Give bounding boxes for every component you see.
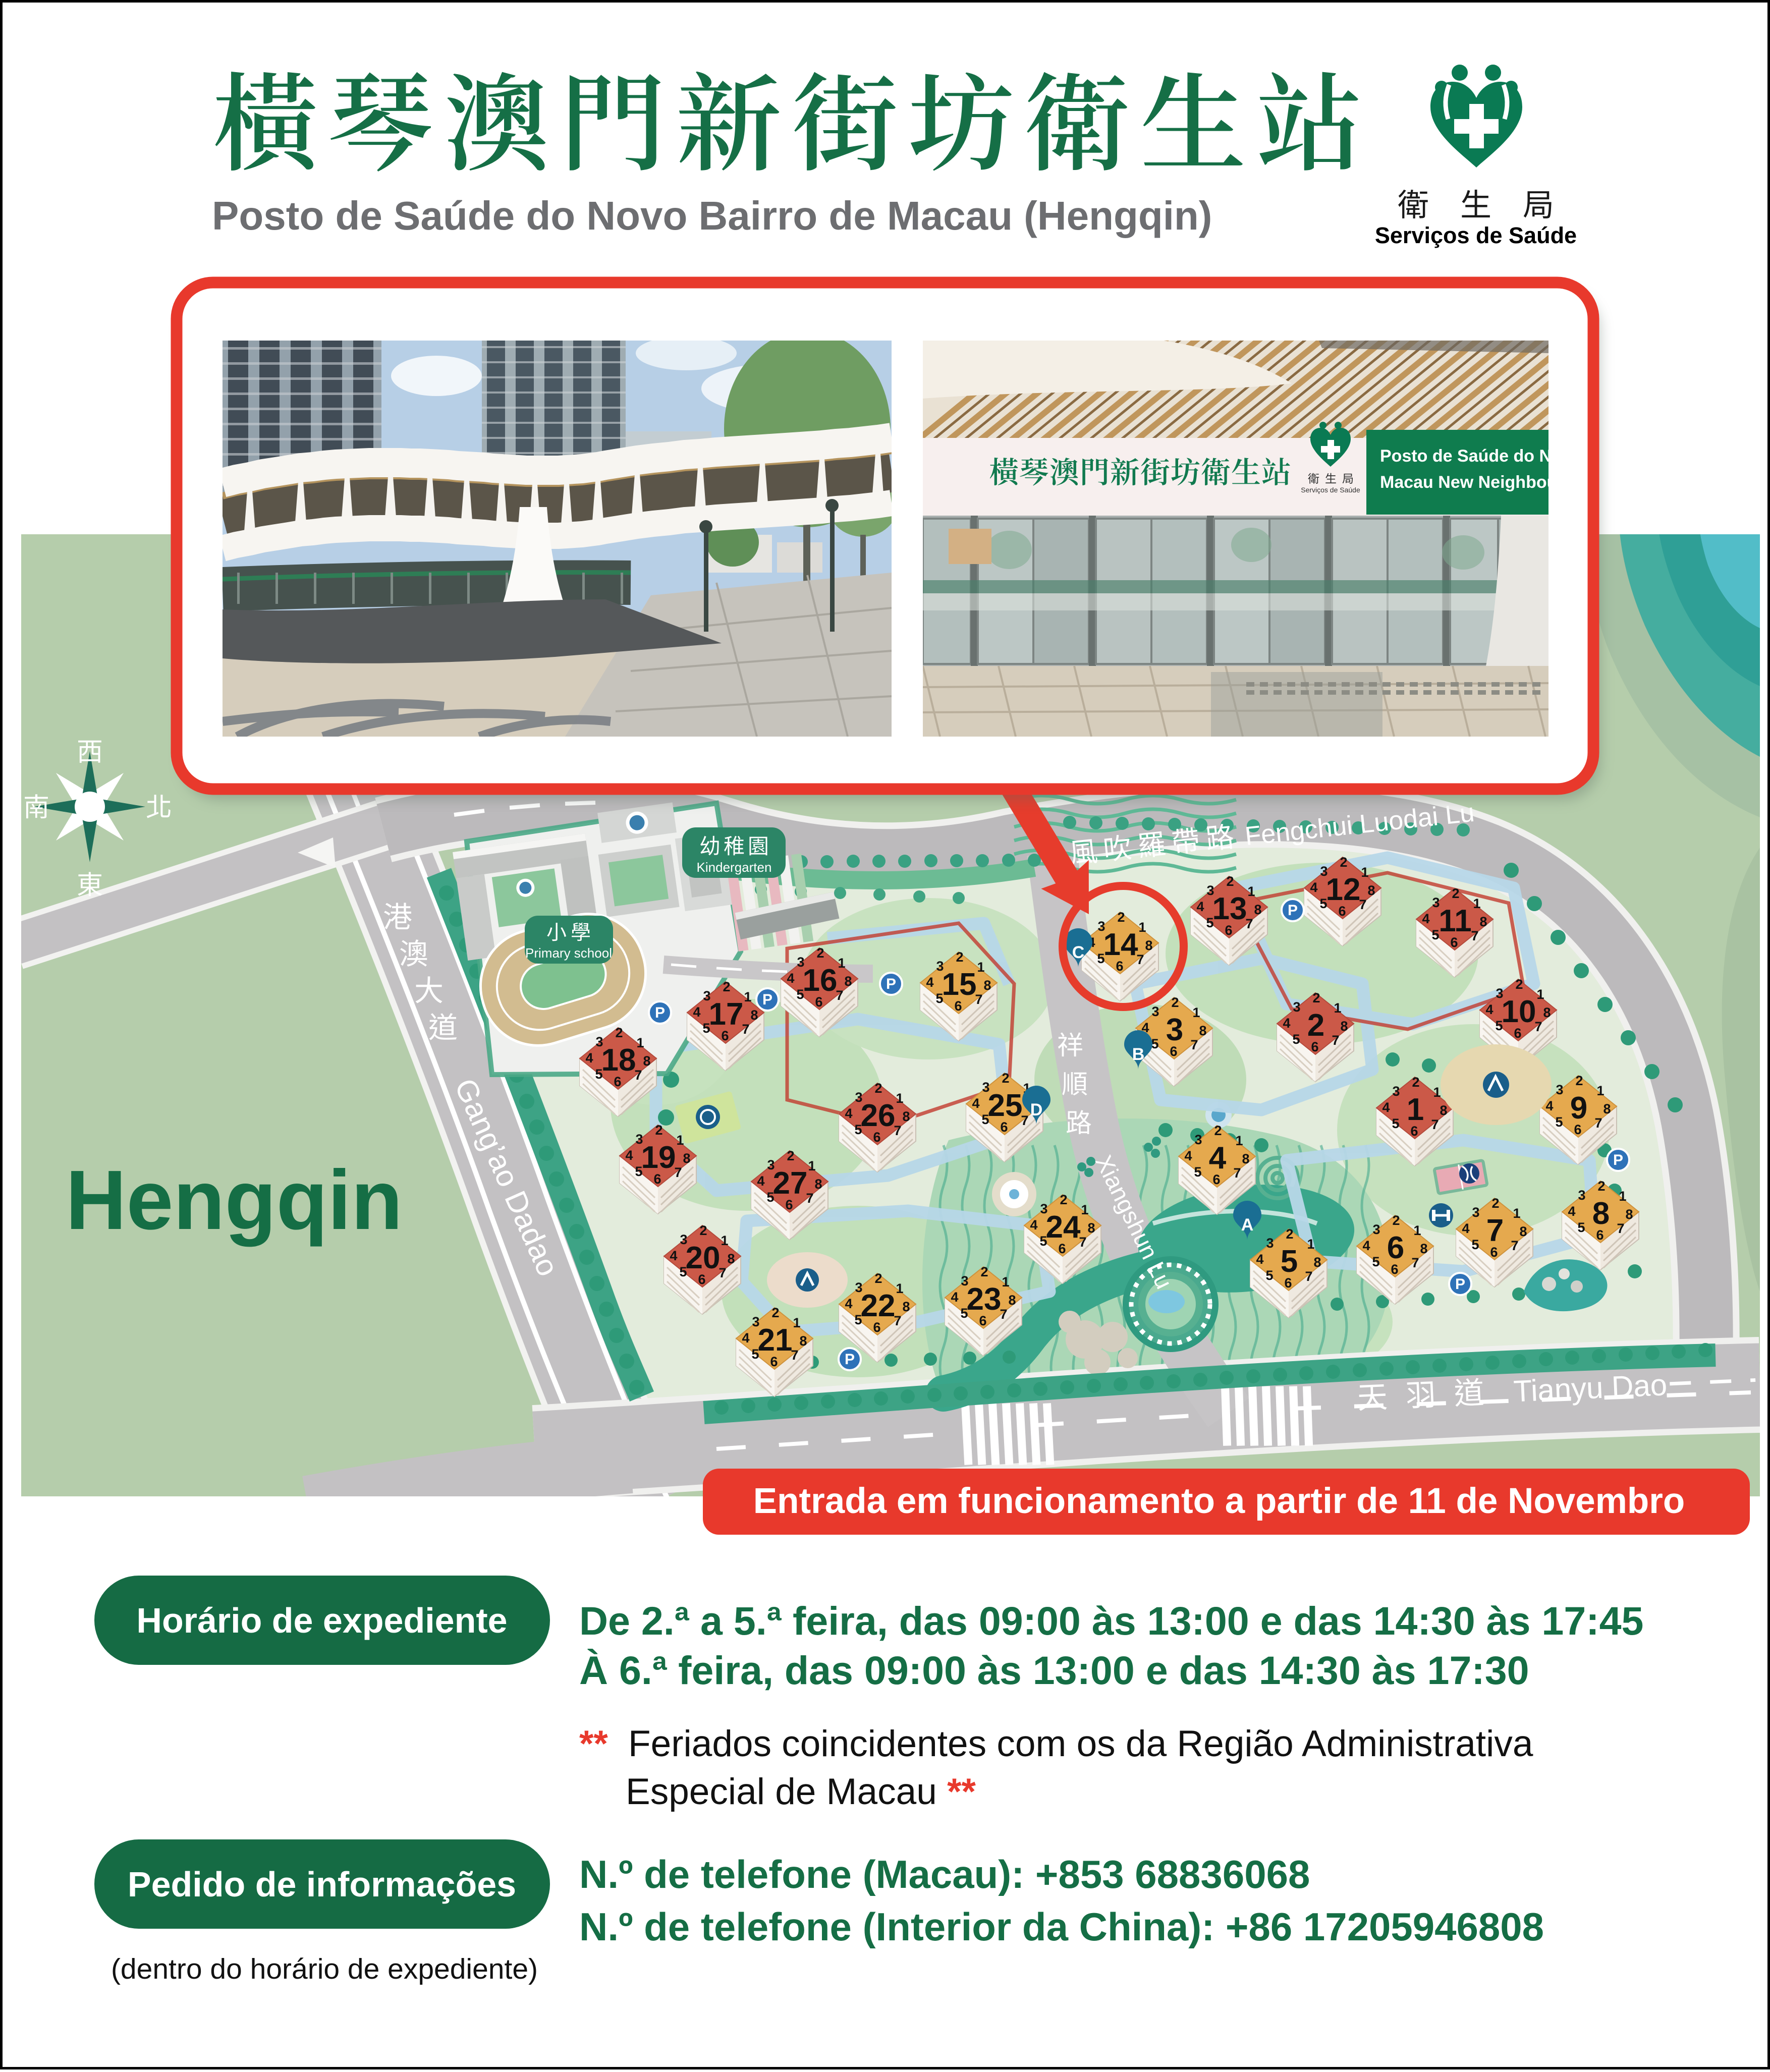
svg-text:5: 5 (1194, 1164, 1201, 1180)
svg-text:5: 5 (1392, 1116, 1399, 1131)
svg-text:4: 4 (1283, 1016, 1290, 1031)
svg-text:De 2.ª a 5.ª feira, das 09:00: De 2.ª a 5.ª feira, das 09:00 às 13:00 e… (579, 1598, 1643, 1643)
svg-text:2: 2 (1002, 1071, 1009, 1086)
svg-text:8: 8 (1479, 914, 1487, 929)
svg-text:1: 1 (1433, 1085, 1441, 1100)
svg-text:11: 11 (1439, 904, 1472, 938)
svg-text:13: 13 (1212, 891, 1247, 926)
svg-text:8: 8 (1420, 1241, 1427, 1256)
svg-text:2: 2 (771, 1305, 779, 1320)
svg-text:Posto de Saúde do Novo Bairro: Posto de Saúde do Novo Bairro de Macau (… (212, 193, 1212, 238)
svg-text:4: 4 (625, 1148, 633, 1163)
svg-text:N.º de telefone (Interior da C: N.º de telefone (Interior da China): +86… (579, 1905, 1544, 1949)
svg-text:2: 2 (1286, 1226, 1293, 1242)
svg-text:Especial de Macau **: Especial de Macau ** (626, 1771, 976, 1812)
svg-text:1: 1 (896, 1281, 903, 1296)
svg-text:4: 4 (1196, 899, 1204, 914)
svg-text:2: 2 (1226, 874, 1234, 889)
svg-text:2: 2 (1307, 1008, 1324, 1043)
svg-text:5: 5 (1281, 1244, 1298, 1279)
svg-text:2: 2 (723, 979, 730, 994)
svg-text:8: 8 (1592, 1196, 1610, 1231)
svg-text:4: 4 (693, 1004, 700, 1020)
svg-text:Primary school: Primary school (525, 945, 612, 961)
svg-text:1: 1 (1081, 1202, 1088, 1217)
svg-text:1: 1 (1413, 1223, 1421, 1238)
svg-text:1: 1 (896, 1091, 903, 1106)
svg-text:16: 16 (803, 963, 838, 998)
svg-text:2: 2 (1060, 1192, 1067, 1207)
svg-text:4: 4 (1462, 1221, 1469, 1236)
svg-text:8: 8 (1199, 1023, 1206, 1038)
svg-text:2: 2 (1597, 1179, 1605, 1194)
svg-text:8: 8 (1440, 1103, 1447, 1118)
svg-text:4: 4 (926, 975, 933, 990)
svg-text:24: 24 (1046, 1210, 1081, 1245)
svg-text:7: 7 (1190, 1037, 1198, 1052)
svg-text:8: 8 (1254, 902, 1261, 917)
svg-text:8: 8 (1313, 1255, 1321, 1270)
svg-text:4: 4 (1184, 1148, 1192, 1163)
svg-text:1: 1 (977, 960, 984, 975)
svg-text:1: 1 (808, 1158, 815, 1173)
svg-text:Tianyu Dao: Tianyu Dao (1513, 1368, 1668, 1408)
svg-text:17: 17 (709, 997, 744, 1032)
svg-text:8: 8 (1625, 1207, 1633, 1222)
svg-text:8: 8 (1543, 1005, 1551, 1020)
svg-text:4: 4 (585, 1050, 593, 1066)
svg-text:7: 7 (1332, 1033, 1339, 1048)
svg-text:8: 8 (1145, 938, 1152, 953)
svg-text:2: 2 (655, 1123, 662, 1138)
svg-text:4: 4 (972, 1096, 979, 1111)
svg-text:7: 7 (1411, 1255, 1419, 1270)
svg-text:8: 8 (902, 1109, 910, 1124)
svg-text:P: P (1613, 1152, 1623, 1168)
svg-text:(dentro do horário de expedien: (dentro do horário de expediente) (111, 1953, 538, 1985)
svg-text:8: 8 (1340, 1019, 1348, 1034)
svg-text:8: 8 (750, 1007, 758, 1023)
svg-text:2: 2 (1515, 977, 1523, 992)
svg-text:3: 3 (1372, 1222, 1380, 1237)
svg-text:Horário de expediente: Horário de expediente (136, 1601, 507, 1640)
svg-text:2: 2 (1312, 990, 1320, 1005)
svg-text:1: 1 (1192, 1005, 1200, 1020)
svg-text:3: 3 (1556, 1082, 1563, 1097)
svg-text:Serviços de Saúde: Serviços de Saúde (1375, 222, 1577, 248)
svg-text:1: 1 (1307, 1237, 1314, 1252)
svg-text:10: 10 (1502, 994, 1536, 1029)
svg-text:4: 4 (1030, 1217, 1037, 1233)
svg-text:5: 5 (1292, 1032, 1300, 1047)
svg-text:7: 7 (1305, 1269, 1312, 1284)
svg-text:A: A (1241, 1215, 1254, 1235)
svg-text:1: 1 (1361, 865, 1368, 880)
svg-text:P: P (845, 1351, 855, 1368)
svg-text:4: 4 (845, 1106, 852, 1121)
svg-text:8: 8 (1008, 1293, 1016, 1308)
svg-text:1: 1 (1334, 1000, 1341, 1016)
svg-text:2: 2 (787, 1148, 794, 1163)
svg-text:8: 8 (844, 974, 852, 989)
svg-text:2: 2 (1117, 910, 1125, 925)
svg-text:Serviços de Saúde: Serviços de Saúde (1301, 486, 1360, 494)
svg-text:5: 5 (1577, 1220, 1585, 1235)
svg-text:2: 2 (1392, 1213, 1400, 1228)
svg-text:1: 1 (1619, 1189, 1626, 1204)
svg-text:Entrada em funcionamento a par: Entrada em funcionamento a partir de 11 … (753, 1481, 1685, 1521)
svg-text:8: 8 (643, 1053, 650, 1069)
svg-text:1: 1 (721, 1233, 728, 1248)
svg-text:1: 1 (793, 1315, 800, 1330)
svg-text:4: 4 (742, 1330, 749, 1346)
svg-text:2: 2 (699, 1223, 707, 1238)
svg-text:7: 7 (1617, 1221, 1624, 1236)
svg-text:2: 2 (1491, 1196, 1499, 1211)
svg-text:P: P (1288, 902, 1298, 919)
svg-text:26: 26 (861, 1098, 896, 1133)
svg-text:5: 5 (1471, 1237, 1479, 1252)
svg-text:**: ** (579, 1723, 608, 1764)
svg-text:2: 2 (980, 1264, 988, 1279)
svg-text:P: P (762, 991, 772, 1008)
svg-text:Feriados coincidentes com os d: Feriados coincidentes com os da Região A… (628, 1723, 1533, 1764)
svg-text:7: 7 (1511, 1238, 1518, 1253)
svg-text:Pedido de informações: Pedido de informações (128, 1865, 516, 1904)
svg-text:9: 9 (1570, 1091, 1587, 1126)
svg-text:4: 4 (1310, 880, 1317, 895)
svg-text:4: 4 (670, 1248, 677, 1263)
svg-text:7: 7 (1233, 1165, 1241, 1181)
svg-text:7: 7 (1486, 1213, 1504, 1248)
svg-text:4: 4 (787, 971, 794, 986)
svg-text:3: 3 (1293, 999, 1300, 1015)
svg-text:C: C (1072, 943, 1085, 962)
svg-text:1: 1 (1513, 1206, 1520, 1221)
svg-text:1: 1 (1247, 884, 1255, 899)
svg-text:3: 3 (1194, 1132, 1202, 1147)
svg-text:4: 4 (1485, 1002, 1493, 1017)
svg-text:1: 1 (838, 956, 845, 971)
svg-text:8: 8 (983, 978, 991, 993)
svg-text:Kindergarten: Kindergarten (697, 860, 772, 875)
svg-text:1: 1 (1407, 1092, 1424, 1127)
svg-text:2: 2 (1340, 855, 1347, 870)
svg-text:4: 4 (1568, 1204, 1575, 1219)
svg-text:1: 1 (1596, 1083, 1604, 1098)
svg-text:2: 2 (874, 1081, 882, 1096)
svg-text:8: 8 (683, 1151, 690, 1166)
svg-text:8: 8 (1519, 1224, 1527, 1239)
svg-text:À 6.ª feira, das 09:00 às 13:0: À 6.ª feira, das 09:00 às 13:00 e das 14… (579, 1648, 1529, 1693)
svg-text:14: 14 (1103, 927, 1138, 962)
svg-text:7: 7 (1431, 1117, 1439, 1132)
svg-text:8: 8 (1603, 1101, 1611, 1116)
svg-text:8: 8 (727, 1251, 735, 1266)
svg-text:P: P (886, 976, 896, 992)
svg-text:2: 2 (1575, 1073, 1583, 1088)
svg-text:27: 27 (773, 1166, 808, 1201)
svg-text:4: 4 (951, 1290, 958, 1305)
svg-text:12: 12 (1326, 872, 1361, 907)
svg-text:19: 19 (641, 1140, 676, 1175)
svg-text:2: 2 (956, 949, 963, 965)
svg-text:Hengqin: Hengqin (66, 1153, 403, 1247)
svg-text:1: 1 (1138, 920, 1146, 935)
svg-text:21: 21 (758, 1323, 793, 1358)
svg-text:2: 2 (615, 1025, 623, 1040)
svg-text:1: 1 (636, 1035, 644, 1050)
svg-text:15: 15 (942, 967, 977, 1002)
svg-text:1: 1 (1536, 987, 1544, 1002)
svg-text:1: 1 (1235, 1133, 1243, 1148)
svg-text:22: 22 (861, 1289, 896, 1323)
svg-text:2: 2 (1452, 886, 1459, 901)
svg-text:3: 3 (1151, 1004, 1159, 1019)
svg-text:2: 2 (816, 945, 824, 961)
svg-text:8: 8 (902, 1299, 910, 1314)
svg-text:8: 8 (1242, 1151, 1249, 1166)
svg-text:4: 4 (1256, 1252, 1263, 1267)
svg-text:N.º de telefone (Macau): +853: N.º de telefone (Macau): +853 68836068 (579, 1852, 1310, 1896)
svg-text:7: 7 (1594, 1115, 1602, 1131)
svg-text:3: 3 (1392, 1084, 1400, 1099)
svg-text:4: 4 (1382, 1100, 1390, 1115)
svg-text:18: 18 (601, 1043, 636, 1078)
svg-text:4: 4 (845, 1296, 852, 1311)
svg-text:3: 3 (1578, 1188, 1585, 1203)
svg-text:2: 2 (874, 1271, 882, 1286)
svg-text:1: 1 (744, 989, 751, 1004)
svg-text:B: B (1132, 1045, 1145, 1064)
svg-text:1: 1 (1473, 896, 1480, 911)
svg-text:P: P (655, 1004, 665, 1021)
svg-text:D: D (1030, 1100, 1043, 1119)
svg-text:3: 3 (1166, 1013, 1183, 1047)
svg-text:4: 4 (1209, 1141, 1227, 1175)
svg-text:20: 20 (686, 1241, 721, 1275)
svg-text:1: 1 (1002, 1274, 1009, 1290)
svg-text:3: 3 (1472, 1205, 1479, 1220)
svg-text:23: 23 (967, 1282, 1002, 1317)
svg-text:2: 2 (1171, 995, 1179, 1010)
svg-text:3: 3 (1266, 1236, 1274, 1251)
svg-text:8: 8 (1087, 1220, 1095, 1236)
svg-text:4: 4 (1362, 1238, 1370, 1253)
svg-text:5: 5 (1555, 1114, 1563, 1130)
svg-text:6: 6 (1387, 1230, 1404, 1265)
svg-text:8: 8 (799, 1333, 807, 1349)
svg-text:25: 25 (988, 1088, 1023, 1123)
svg-text:8: 8 (1367, 883, 1375, 898)
svg-text:2: 2 (1214, 1123, 1222, 1138)
svg-text:5: 5 (1265, 1268, 1273, 1283)
svg-text:5: 5 (1372, 1254, 1379, 1269)
svg-text:P: P (1455, 1276, 1465, 1293)
svg-text:4: 4 (1422, 911, 1429, 926)
svg-text:2: 2 (1412, 1075, 1419, 1090)
svg-text:8: 8 (814, 1177, 822, 1192)
svg-text:7: 7 (1471, 928, 1478, 943)
svg-text:4: 4 (757, 1173, 764, 1189)
